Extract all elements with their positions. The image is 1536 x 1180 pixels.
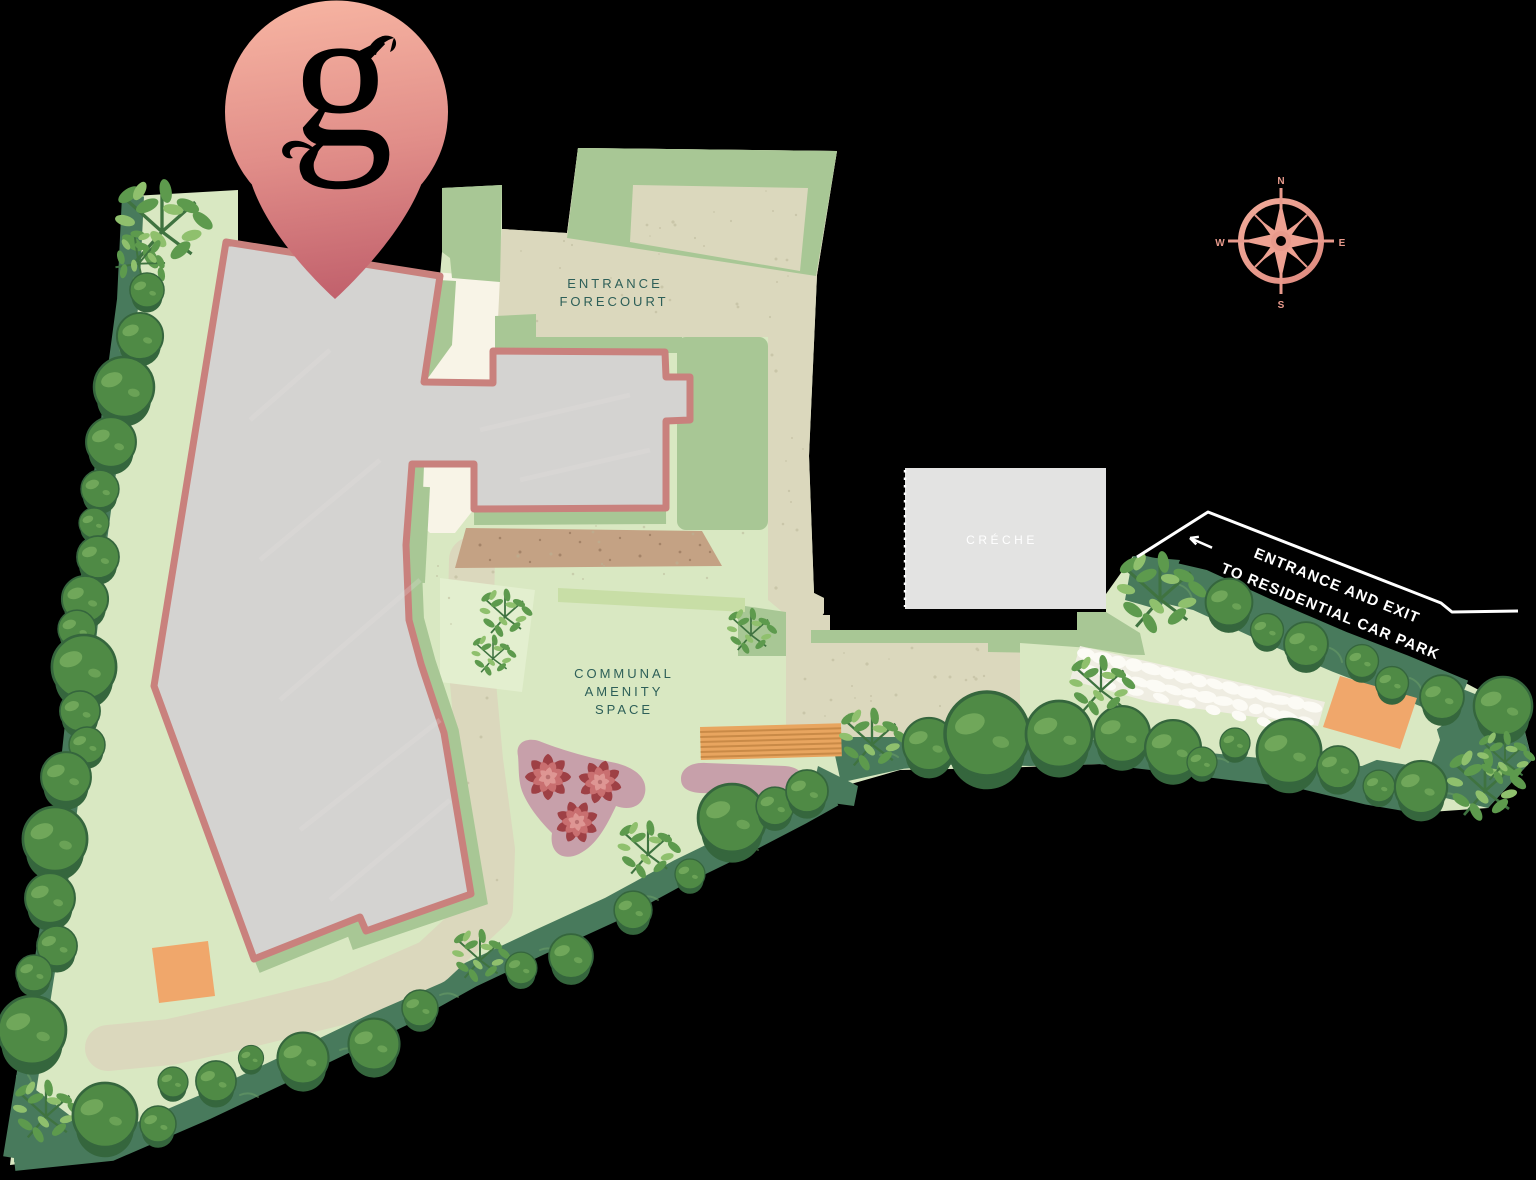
svg-text:ENTRANCE: ENTRANCE (567, 276, 663, 291)
svg-text:SPACE: SPACE (595, 702, 653, 717)
svg-text:CRÉCHE: CRÉCHE (966, 532, 1038, 547)
svg-text:g: g (291, 0, 394, 190)
svg-text:W: W (1215, 238, 1225, 249)
svg-text:S: S (1278, 300, 1285, 311)
svg-text:AMENITY: AMENITY (585, 684, 664, 699)
svg-text:N: N (1277, 176, 1284, 187)
svg-text:COMMUNAL: COMMUNAL (574, 666, 674, 681)
svg-text:E: E (1339, 238, 1346, 249)
svg-text:FORECOURT: FORECOURT (559, 294, 668, 309)
